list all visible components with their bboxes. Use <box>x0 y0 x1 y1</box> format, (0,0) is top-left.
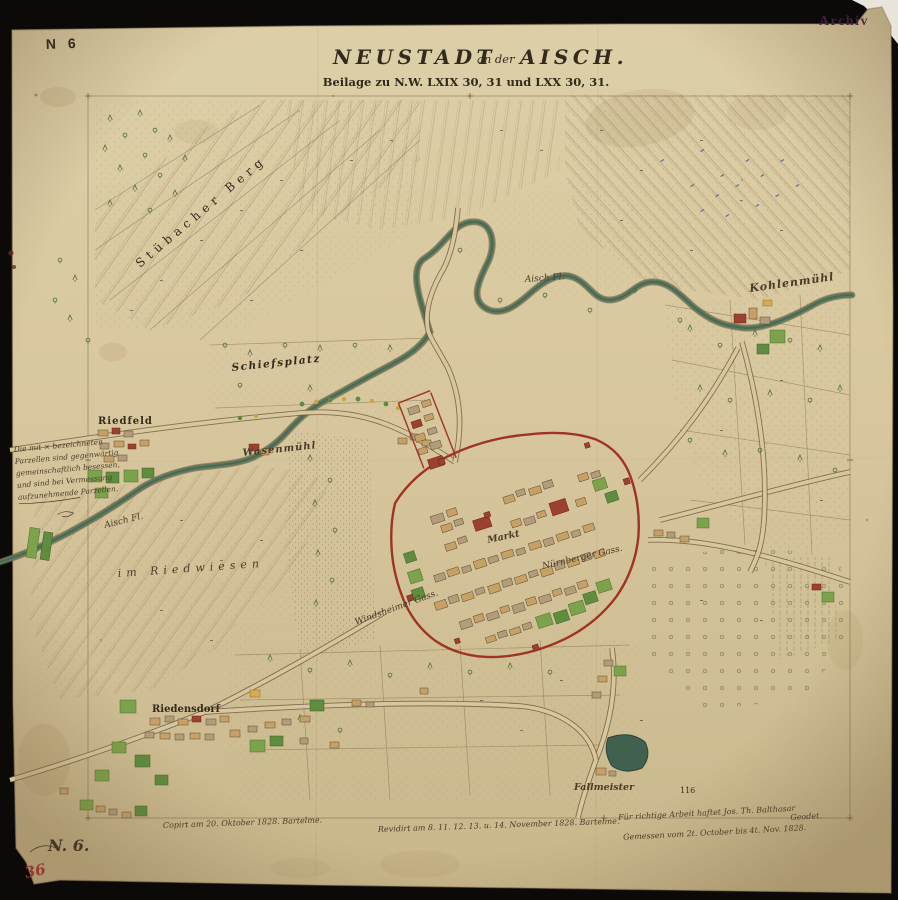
map-sheet-svg: NEUSTADT an der AISCH. Beilage zu N.W. L… <box>0 0 898 900</box>
photo-frame: NEUSTADT an der AISCH. Beilage zu N.W. L… <box>0 0 898 900</box>
photo-vignette <box>12 7 893 893</box>
